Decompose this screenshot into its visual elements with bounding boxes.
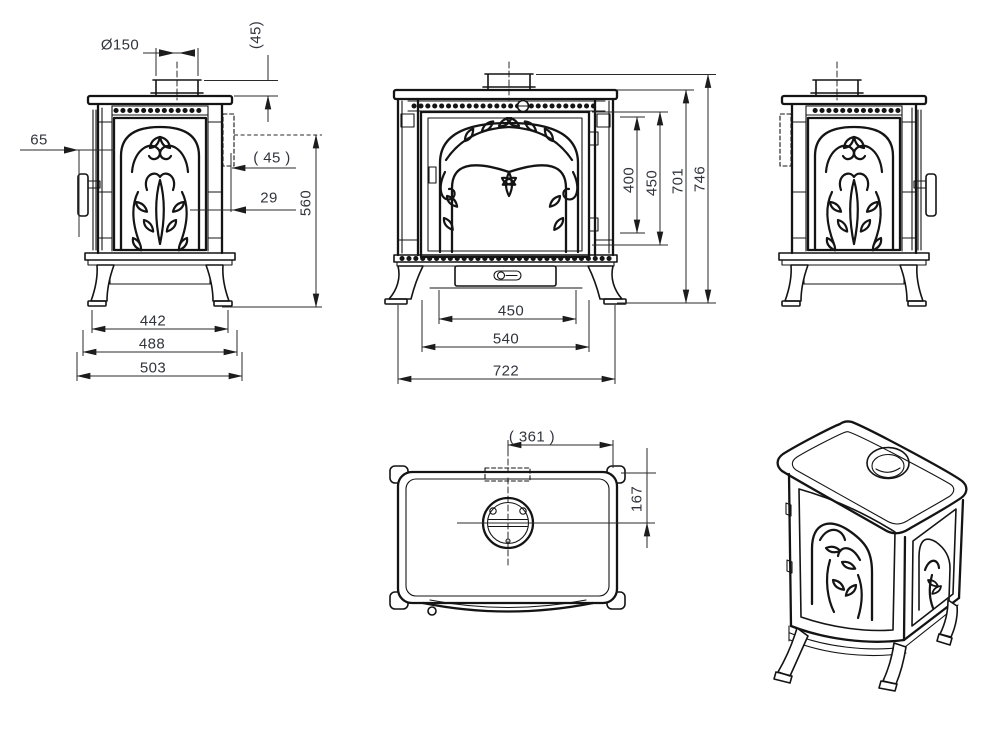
dim-label-rear-clearance: 29 (260, 191, 278, 206)
left-side-view (78, 62, 235, 306)
front-foliage-ornament (441, 118, 578, 231)
dim-label-outlet-center-height: 560 (299, 190, 314, 216)
dim-label-flue-center-from-side: ( 361 ) (509, 430, 555, 445)
dim-label-overall-height: 746 (693, 166, 708, 192)
door-hinge-pin (428, 607, 436, 615)
dim-label-overall-depth: 503 (140, 361, 166, 376)
isometric-view (774, 421, 966, 691)
dim-label-collar-height: (45) (249, 21, 264, 49)
dim-label-door-height: 450 (645, 170, 660, 196)
dim-label-body-height: 701 (671, 168, 686, 194)
top-view (390, 450, 625, 615)
iso-flue-collar (867, 448, 909, 479)
ash-drawer (455, 266, 556, 286)
door-latch (429, 167, 436, 183)
dim-label-glass-height: 400 (622, 167, 637, 193)
dim-label-drawer-width: 450 (498, 304, 524, 319)
dim-label-rear-outlet-offset: ( 45 ) (253, 151, 290, 166)
dim-label-flue-center-from-rear: 167 (630, 486, 645, 512)
dim-label-flue-diameter: Ø150 (101, 38, 139, 53)
door-hinge-bottom (589, 218, 598, 231)
dim-label-overall-width: 722 (493, 364, 519, 379)
dim-label-handle-offset: 65 (30, 133, 48, 148)
dim-label-base-depth: 488 (139, 337, 165, 352)
iso-front-foliage (820, 530, 862, 618)
dim-label-door-width: 540 (493, 332, 519, 347)
right-side-view (779, 62, 936, 306)
iso-side-foliage (925, 561, 941, 608)
door-hinge-top (589, 132, 598, 145)
stove-technical-drawing: Ø150 (45) 65 ( 45 ) 29 560 442 488 503 4… (0, 0, 1000, 729)
dim-label-leg-span: 442 (140, 314, 166, 329)
front-view (385, 62, 626, 304)
